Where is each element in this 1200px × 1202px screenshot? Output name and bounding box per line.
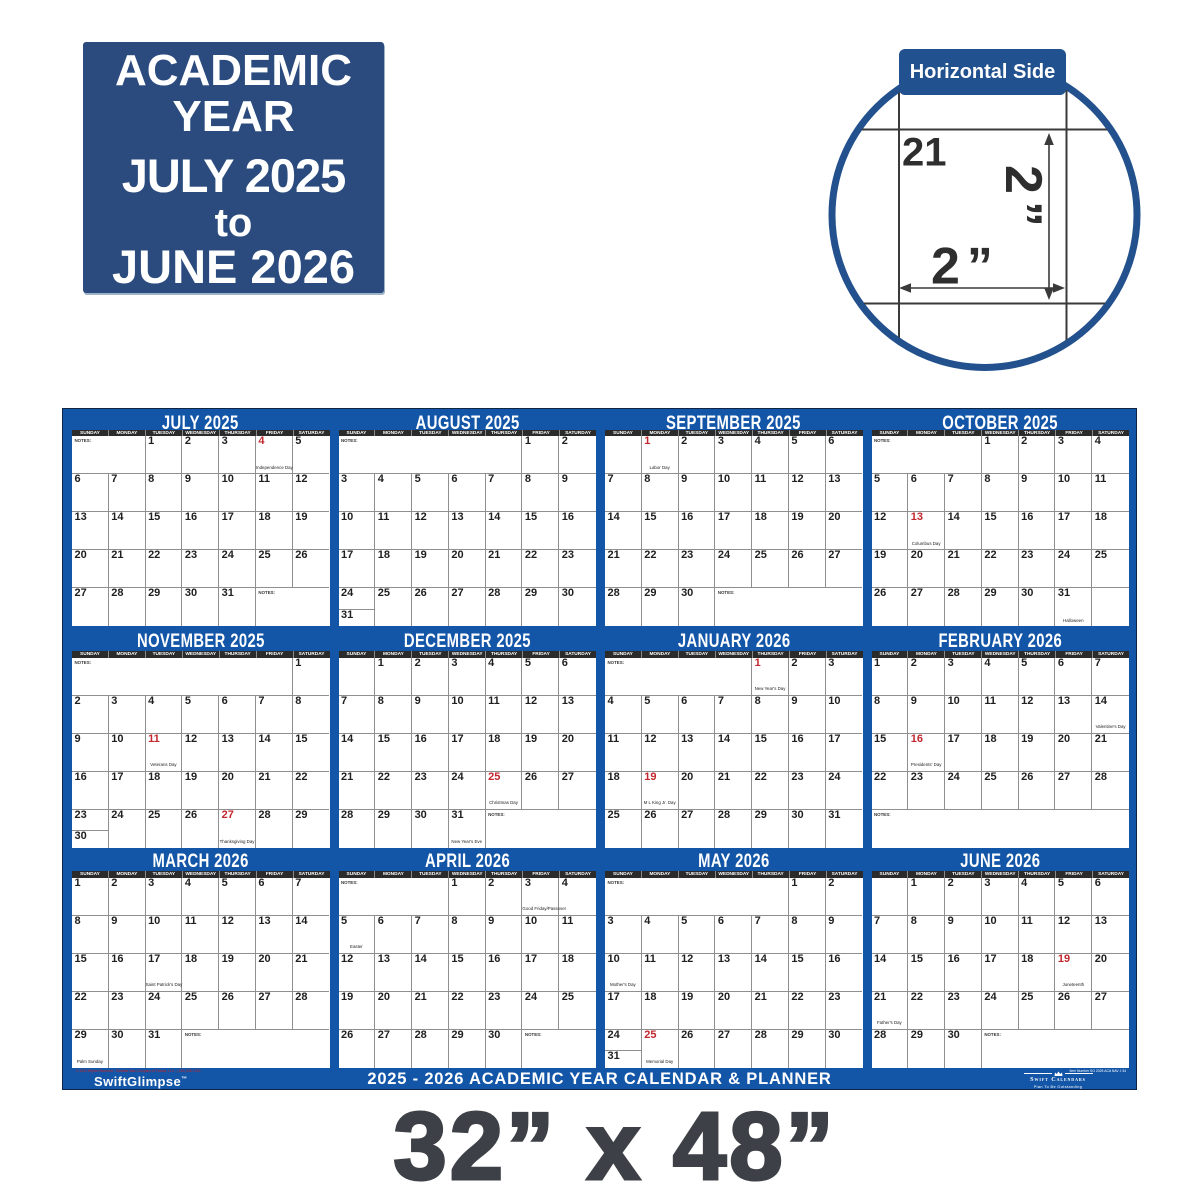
svg-text:2”: 2” (994, 165, 1052, 234)
svg-text:21: 21 (902, 131, 947, 175)
svg-text:2”: 2” (931, 238, 1000, 296)
